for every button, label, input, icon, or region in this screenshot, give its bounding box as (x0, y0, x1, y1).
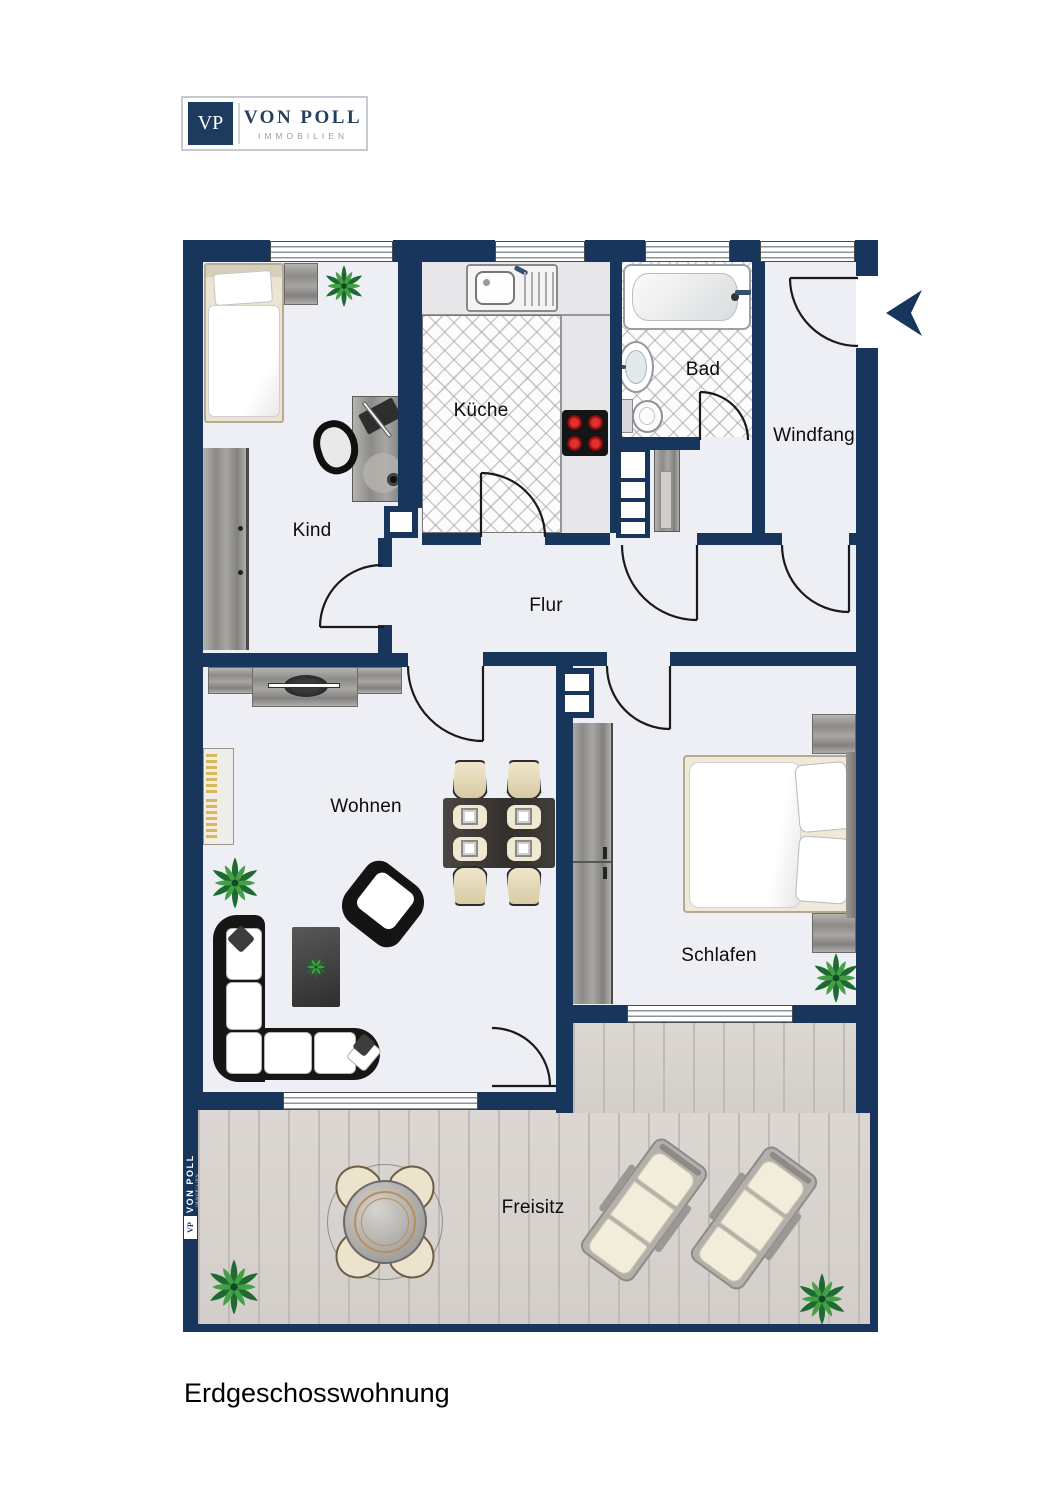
schlafen-wardrobe (570, 723, 613, 1004)
watermark-initials: VP (186, 1222, 195, 1233)
bed-pillow (794, 761, 852, 833)
wall (793, 1005, 878, 1023)
piano (203, 748, 234, 845)
place-setting (453, 837, 487, 861)
bath-sink-basin (625, 350, 647, 384)
kind-cabinet (284, 263, 318, 305)
shelf-cell (621, 522, 645, 534)
plant-icon (205, 1258, 263, 1316)
window (760, 241, 855, 262)
wall (483, 652, 607, 666)
plant-icon (208, 856, 262, 910)
wall (856, 348, 878, 1113)
wall (183, 653, 408, 667)
bed-pillow (795, 835, 851, 904)
plan-caption: Erdgeschosswohnung (184, 1378, 450, 1409)
watermark-subtitle: IMMOBILIEN (194, 1173, 199, 1207)
terrace-border (870, 1113, 878, 1324)
tv-screen-bar (268, 683, 340, 688)
wall (730, 240, 760, 262)
room-label-wohnen: Wohnen (330, 796, 402, 818)
plant-icon (322, 264, 366, 308)
sofa-cushion (264, 1032, 312, 1074)
wall (752, 262, 765, 537)
shelf-cell (621, 482, 645, 498)
logo-name: VON POLL (240, 107, 366, 129)
plate (515, 808, 532, 825)
double-bed (683, 755, 858, 913)
piano-keys (206, 754, 217, 794)
duct-cell (565, 695, 589, 712)
sofa-cushion (226, 982, 262, 1030)
place-setting (507, 805, 541, 829)
wall (697, 533, 752, 545)
wardrobe-handle (238, 526, 243, 531)
plate (515, 840, 532, 857)
room-label-kueche: Küche (454, 400, 509, 422)
wall (378, 538, 392, 567)
wardrobe-handle (603, 867, 607, 879)
terrace-deck-upper (573, 1023, 856, 1113)
place-setting (507, 837, 541, 861)
plant-icon (810, 952, 862, 1004)
hob-burner (588, 436, 603, 451)
window (495, 241, 585, 262)
wall (398, 262, 422, 508)
room-label-bad: Bad (686, 359, 720, 381)
storage-shelf (616, 448, 650, 538)
wall (670, 652, 856, 666)
door-jamb (384, 506, 418, 538)
wall (556, 1005, 627, 1023)
entrance-arrow-icon (886, 290, 922, 336)
wall (752, 533, 782, 545)
hob-burner (567, 436, 582, 451)
chimney-duct (560, 668, 594, 718)
shelf-cell (621, 452, 645, 478)
desk-lamp-shade (363, 453, 403, 493)
dining-table (443, 798, 555, 868)
sink-drain (483, 279, 490, 286)
logo-subtitle: IMMOBILIEN (240, 131, 366, 141)
bathtub (623, 264, 751, 330)
bath-sink (618, 341, 654, 393)
wall (378, 625, 392, 653)
room-label-flur: Flur (529, 595, 563, 617)
sofa-cushion (226, 1032, 262, 1074)
window (270, 241, 393, 262)
bathtub-basin (632, 273, 738, 321)
vonpoll-logo: VP VON POLL IMMOBILIEN (181, 96, 368, 151)
kitchen-tile-floor (422, 315, 561, 533)
plate (461, 840, 478, 857)
kitchen-hob (562, 410, 608, 456)
terrace-dining-set (327, 1164, 443, 1280)
wall (478, 1092, 573, 1110)
place-setting (453, 805, 487, 829)
cabinet-door (660, 471, 672, 529)
room-label-windfang: Windfang (773, 425, 855, 447)
room-label-freisitz: Freisitz (502, 1197, 565, 1219)
toilet-seat (639, 407, 655, 425)
logo-vp-monogram: VP (188, 102, 233, 145)
wall (422, 533, 481, 545)
nightstand (812, 714, 856, 754)
bed-duvet (689, 762, 801, 908)
armchair-cushion (354, 869, 417, 932)
shelf-cell (621, 502, 645, 518)
plant-icon (304, 955, 328, 979)
wardrobe-handle (603, 847, 607, 859)
wall (585, 240, 645, 262)
wall (183, 1092, 283, 1110)
bed-duvet (208, 305, 280, 417)
wall (855, 240, 878, 262)
terrace-window (283, 1092, 478, 1110)
kind-single-bed (204, 263, 284, 423)
window (627, 1005, 793, 1023)
duct-cell (565, 674, 589, 691)
wall (849, 533, 878, 545)
logo-text: VON POLL IMMOBILIEN (240, 107, 366, 141)
dining-chair (452, 760, 488, 800)
storage-cabinet (654, 446, 680, 532)
terrace-border (183, 1324, 878, 1332)
nightstand (812, 913, 856, 953)
toilet-bowl (632, 400, 663, 433)
watermark-vp-box: VP (184, 1216, 197, 1239)
wardrobe-divider (570, 861, 611, 863)
terrace-table (343, 1180, 427, 1264)
dining-chair (506, 760, 542, 800)
piano-keys (206, 799, 217, 841)
bed-pillow (213, 270, 273, 306)
sink-drainer (524, 272, 554, 306)
dining-chair (452, 866, 488, 906)
floorplan-page: VP VON POLL IMMOBILIEN (0, 0, 1060, 1500)
kind-wardrobe (203, 448, 249, 650)
wall (393, 240, 495, 262)
wall (556, 652, 573, 1113)
dining-chair (506, 866, 542, 906)
hob-burner (588, 415, 603, 430)
wall (856, 262, 878, 276)
room-label-schlafen: Schlafen (681, 945, 757, 967)
wardrobe-handle (238, 570, 243, 575)
table-ring (361, 1198, 409, 1246)
sink-basin (475, 271, 515, 305)
wall (183, 262, 203, 1092)
hob-burner (567, 415, 582, 430)
kitchen-sink-unit (466, 264, 558, 312)
plate (461, 808, 478, 825)
room-label-kind: Kind (293, 520, 332, 542)
window (645, 241, 730, 262)
tub-faucet (735, 290, 751, 295)
wall (545, 533, 610, 545)
plant-icon (795, 1272, 849, 1326)
wall (183, 240, 270, 262)
